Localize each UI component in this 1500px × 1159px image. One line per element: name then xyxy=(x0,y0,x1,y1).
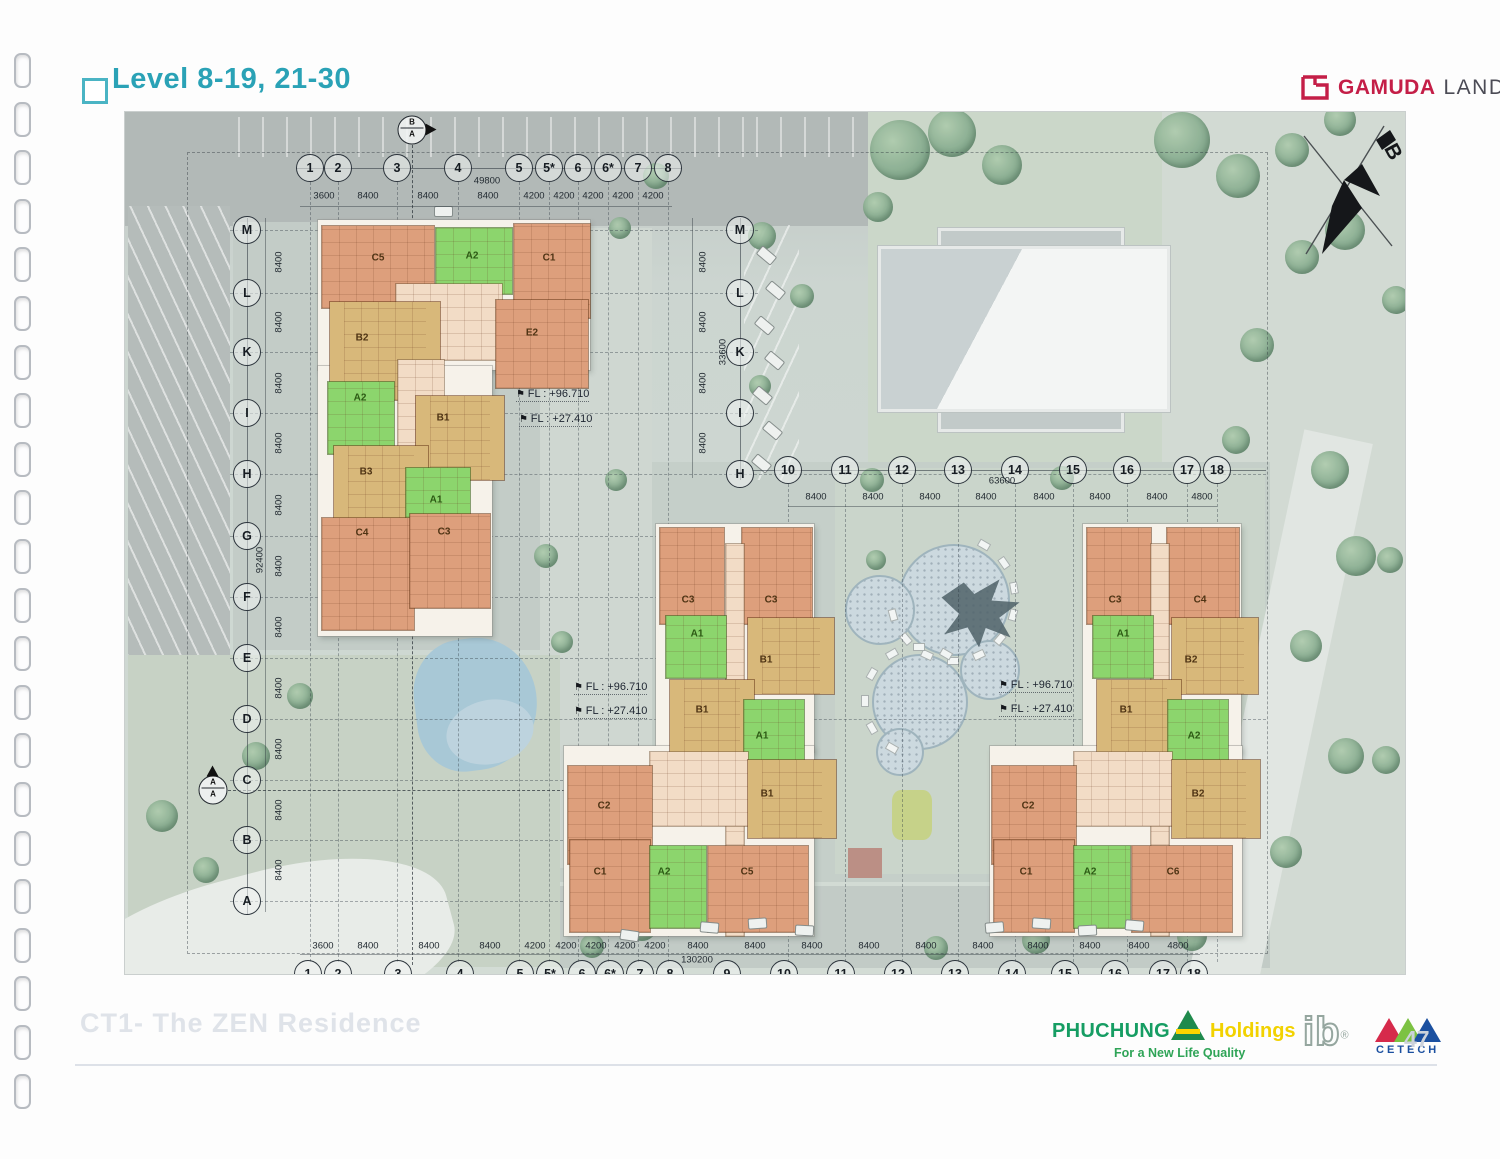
dimension-label: 8400 xyxy=(274,432,285,453)
unit-label: B2 xyxy=(356,333,369,344)
unit-label: A2 xyxy=(466,251,479,262)
binder-holes xyxy=(0,0,60,1159)
tree xyxy=(1382,286,1405,314)
tree xyxy=(1336,536,1376,576)
ib-logo: ib® xyxy=(1303,1010,1349,1055)
grid-bubble: M xyxy=(233,216,261,244)
car xyxy=(985,921,1005,934)
unit-label: B2 xyxy=(1192,789,1205,800)
tree xyxy=(1372,746,1400,774)
dimension-label: 8400 xyxy=(274,311,285,332)
binder-hole xyxy=(14,928,31,963)
phuchung-logo: PHUCHUNG Holdings For a New Life Quality xyxy=(1052,1016,1277,1064)
section-marker-bottom-label: A xyxy=(399,129,426,140)
grid-bubble: A xyxy=(233,887,261,915)
binder-hole xyxy=(14,685,31,720)
grid-bubble: 2 xyxy=(324,154,352,182)
building-block xyxy=(1074,752,1172,826)
dimension-label: 8400 xyxy=(274,372,285,393)
unit-label: A2 xyxy=(658,867,671,878)
dimension-label: 8400 xyxy=(698,372,709,393)
unit-label: B2 xyxy=(1185,655,1198,666)
area-stalls-b xyxy=(756,117,864,157)
unit-label: C6 xyxy=(1167,867,1180,878)
grid-bubble: 8 xyxy=(654,154,682,182)
dimension-total: 49800 xyxy=(474,176,500,187)
car xyxy=(748,917,768,929)
binder-hole xyxy=(14,247,31,282)
dimension-label: 4200 xyxy=(644,941,665,952)
grid-bubble: 15 xyxy=(1059,456,1087,484)
dimension-label: 4200 xyxy=(555,941,576,952)
unit-label: C3 xyxy=(765,595,778,606)
binder-hole xyxy=(14,1025,31,1060)
section-marker-arrow-icon xyxy=(207,766,219,777)
grid-bubble: 6 xyxy=(564,154,592,182)
project-title: CT1- The ZEN Residence xyxy=(80,1008,422,1039)
building-block xyxy=(670,680,754,754)
unit-label: B1 xyxy=(761,789,774,800)
binder-hole xyxy=(14,393,31,428)
unit-label: C5 xyxy=(741,867,754,878)
unit-label: C4 xyxy=(1194,595,1207,606)
grid-bubble: 5* xyxy=(535,154,563,182)
binder-hole xyxy=(14,1074,31,1109)
grid-bubble: H xyxy=(726,460,754,488)
dimension-label: 8400 xyxy=(919,492,940,503)
unit-label: E2 xyxy=(526,328,538,339)
car xyxy=(1125,919,1145,932)
dimension-label: 8400 xyxy=(357,191,378,202)
dimension-label: 3600 xyxy=(313,191,334,202)
dimension-label: 8400 xyxy=(1079,941,1100,952)
building-block xyxy=(1167,528,1239,624)
dimension-label: 8400 xyxy=(858,941,879,952)
tree xyxy=(146,800,178,832)
grid-bubble: 13 xyxy=(944,456,972,484)
title-checkbox xyxy=(82,78,108,104)
binder-hole xyxy=(14,53,31,88)
unit-label: C1 xyxy=(594,867,607,878)
unit-label: C4 xyxy=(356,528,369,539)
fl-level-marker: FL : +27.410 xyxy=(574,705,647,719)
unit-label: C5 xyxy=(372,253,385,264)
dimension-label: 8400 xyxy=(417,191,438,202)
unit-label: A1 xyxy=(430,495,443,506)
grid-bubble: 11 xyxy=(831,456,859,484)
binder-hole xyxy=(14,782,31,817)
dimension-label: 8400 xyxy=(687,941,708,952)
grid-bubble: 6* xyxy=(594,154,622,182)
dimension-label: 8400 xyxy=(975,492,996,503)
dimension-label: 8400 xyxy=(805,492,826,503)
dimension-label: 8400 xyxy=(972,941,993,952)
unit-label: C3 xyxy=(438,527,451,538)
gamuda-land-wordmark: LAND xyxy=(1444,76,1500,100)
section-marker: BA xyxy=(398,116,427,145)
grid-bubble: 3 xyxy=(383,154,411,182)
grid-bubble: H xyxy=(233,460,261,488)
dimension-label: 8400 xyxy=(479,941,500,952)
binder-hole xyxy=(14,442,31,477)
dimension-label: 3600 xyxy=(312,941,333,952)
dimension-label: 8400 xyxy=(915,941,936,952)
grid-bubble: 1 xyxy=(296,154,324,182)
dimension-label: 8400 xyxy=(801,941,822,952)
building-block xyxy=(650,752,748,826)
dim-line xyxy=(300,954,1200,955)
unit-label: C2 xyxy=(1022,801,1035,812)
building-block xyxy=(650,846,706,928)
grid-bubble: K xyxy=(726,338,754,366)
building-block xyxy=(1172,760,1260,838)
tree xyxy=(1311,451,1349,489)
grid-bubble: K xyxy=(233,338,261,366)
grid-bubble: 7 xyxy=(624,154,652,182)
dimension-label: 4200 xyxy=(614,941,635,952)
car xyxy=(1078,925,1098,937)
binder-hole xyxy=(14,539,31,574)
tree xyxy=(1270,836,1302,868)
building-block xyxy=(1074,846,1130,928)
dimension-total: 92400 xyxy=(255,547,266,573)
dimension-label: 8400 xyxy=(274,251,285,272)
area-stalls-a xyxy=(238,117,753,157)
fl-level-marker: FL : +27.410 xyxy=(999,703,1072,717)
car xyxy=(700,921,720,934)
grid-bubble: 17 xyxy=(1173,456,1201,484)
dim-line xyxy=(300,206,672,207)
section-marker-top-label: B xyxy=(399,117,426,128)
fl-level-marker: FL : +96.710 xyxy=(516,388,589,402)
unit-label: B1 xyxy=(696,705,709,716)
section-marker-top-label: A xyxy=(200,777,227,788)
gamuda-wordmark: GAMUDA xyxy=(1338,76,1436,100)
unit-label: C3 xyxy=(1109,595,1122,606)
tree xyxy=(1328,738,1364,774)
car xyxy=(434,206,453,217)
unit-label: A2 xyxy=(1084,867,1097,878)
dimension-label: 4200 xyxy=(553,191,574,202)
dimension-label: 4200 xyxy=(582,191,603,202)
unit-label: B1 xyxy=(1120,705,1133,716)
unit-label: A2 xyxy=(1188,731,1201,742)
dimension-label: 8400 xyxy=(698,432,709,453)
page-title: Level 8-19, 21-30 xyxy=(112,63,351,96)
unit-label: B1 xyxy=(760,655,773,666)
gamuda-land-logo: GAMUDA LAND xyxy=(1300,74,1500,101)
section-marker-bottom-label: A xyxy=(200,789,227,800)
gamuda-logo-icon xyxy=(1300,74,1330,101)
building-block xyxy=(1132,846,1232,932)
grid-bubble: I xyxy=(233,399,261,427)
ib-reg-mark: ® xyxy=(1341,1030,1349,1042)
phuchung-holdings-wordmark: Holdings xyxy=(1210,1020,1296,1043)
unit-label: A1 xyxy=(691,629,704,640)
dimension-label: 4200 xyxy=(524,941,545,952)
grid-bubble: M xyxy=(726,216,754,244)
dimension-label: 8400 xyxy=(862,492,883,503)
car xyxy=(795,925,815,937)
dimension-label: 8400 xyxy=(274,494,285,515)
dimension-label: 8400 xyxy=(274,555,285,576)
ib-logo-text: ib xyxy=(1303,1010,1341,1054)
phuchung-tagline: For a New Life Quality xyxy=(1114,1046,1245,1060)
fl-level-marker: FL : +96.710 xyxy=(574,681,647,695)
grid-bubble: C xyxy=(233,766,261,794)
tree xyxy=(1290,630,1322,662)
binder-hole xyxy=(14,733,31,768)
grid-bubble: 16 xyxy=(1113,456,1141,484)
phuchung-wordmark: PHUCHUNG xyxy=(1052,1020,1170,1043)
building-block xyxy=(666,616,726,678)
unit-label: C2 xyxy=(598,801,611,812)
building-block xyxy=(1093,616,1153,678)
phuchung-triangle-icon xyxy=(1171,1010,1205,1040)
binder-hole xyxy=(14,976,31,1011)
unit-label: A2 xyxy=(354,393,367,404)
dimension-label: 8400 xyxy=(274,859,285,880)
axis-line xyxy=(247,218,248,915)
dimension-total: 33600 xyxy=(718,339,729,365)
dimension-label: 8400 xyxy=(744,941,765,952)
grid-bubble: 5 xyxy=(505,154,533,182)
footer-logos: PHUCHUNG Holdings For a New Life Quality… xyxy=(1052,1016,1441,1064)
dimension-label: 4200 xyxy=(523,191,544,202)
building-block xyxy=(660,528,724,624)
binder-hole xyxy=(14,345,31,380)
grid-bubble: I xyxy=(726,399,754,427)
dimension-total: 63600 xyxy=(989,476,1015,487)
dimension-total: 130200 xyxy=(681,955,713,966)
grid-bubble: B xyxy=(233,826,261,854)
building-block xyxy=(496,300,588,388)
dimension-label: 8400 xyxy=(1128,941,1149,952)
grid-bubble: 18 xyxy=(1203,456,1231,484)
tree xyxy=(1377,547,1403,573)
dimension-label: 8400 xyxy=(357,941,378,952)
building-block xyxy=(744,700,804,762)
binder-hole xyxy=(14,296,31,331)
dimension-label: 8400 xyxy=(274,677,285,698)
unit-label: C1 xyxy=(543,253,556,264)
unit-label: A1 xyxy=(756,731,769,742)
dimension-label: 8400 xyxy=(1089,492,1110,503)
building-block xyxy=(570,840,650,932)
dimension-label: 4800 xyxy=(1167,941,1188,952)
dimension-label: 4200 xyxy=(585,941,606,952)
page-number: 47 xyxy=(1404,1026,1430,1053)
grid-bubble: 4 xyxy=(444,154,472,182)
dimension-label: 8400 xyxy=(1027,941,1048,952)
grid-bubble: 12 xyxy=(888,456,916,484)
binder-hole xyxy=(14,831,31,866)
dimension-label: 8400 xyxy=(274,799,285,820)
dimension-label: 4200 xyxy=(642,191,663,202)
grid-bubble: 10 xyxy=(774,456,802,484)
unit-label: C1 xyxy=(1020,867,1033,878)
unit-label: A1 xyxy=(1117,629,1130,640)
unit-label: C3 xyxy=(682,595,695,606)
dimension-label: 8400 xyxy=(418,941,439,952)
dimension-label: 4800 xyxy=(1191,492,1212,503)
binder-hole xyxy=(14,199,31,234)
dimension-label: 8400 xyxy=(274,738,285,759)
binder-hole xyxy=(14,588,31,623)
unit-label: B1 xyxy=(437,413,450,424)
section-marker: AA xyxy=(199,776,228,805)
drawing-page: Level 8-19, 21-30 GAMUDA LAND C5A2C1B2E2… xyxy=(0,0,1500,1159)
car xyxy=(1032,917,1052,929)
footer-rule xyxy=(75,1064,1437,1066)
site-plan: C5A2C1B2E2A2B1B3A1C4C3C3C3A1B1B1A1C2B1C1… xyxy=(125,112,1405,974)
fl-level-marker: FL : +96.710 xyxy=(999,679,1072,693)
dimension-label: 8400 xyxy=(274,616,285,637)
dimension-label: 8400 xyxy=(1033,492,1054,503)
grid-bubble: L xyxy=(233,279,261,307)
grid-bubble: D xyxy=(233,705,261,733)
dimension-label: 8400 xyxy=(477,191,498,202)
binder-hole xyxy=(14,636,31,671)
dim-line xyxy=(692,218,693,478)
grid-bubble: L xyxy=(726,279,754,307)
building-block xyxy=(1087,528,1151,624)
binder-hole xyxy=(14,490,31,525)
fl-level-marker: FL : +27.410 xyxy=(519,413,592,427)
dimension-label: 8400 xyxy=(1146,492,1167,503)
grid-bubble: E xyxy=(233,644,261,672)
dim-line xyxy=(788,506,1217,507)
dimension-label: 8400 xyxy=(698,311,709,332)
dimension-label: 4200 xyxy=(612,191,633,202)
binder-hole xyxy=(14,150,31,185)
binder-hole xyxy=(14,879,31,914)
binder-hole xyxy=(14,102,31,137)
dimension-label: 8400 xyxy=(698,251,709,272)
building-block xyxy=(742,528,812,624)
grid-bubble: F xyxy=(233,583,261,611)
section-marker-arrow-icon xyxy=(426,124,437,136)
north-arrow-icon xyxy=(1292,118,1405,258)
unit-label: B3 xyxy=(360,467,373,478)
